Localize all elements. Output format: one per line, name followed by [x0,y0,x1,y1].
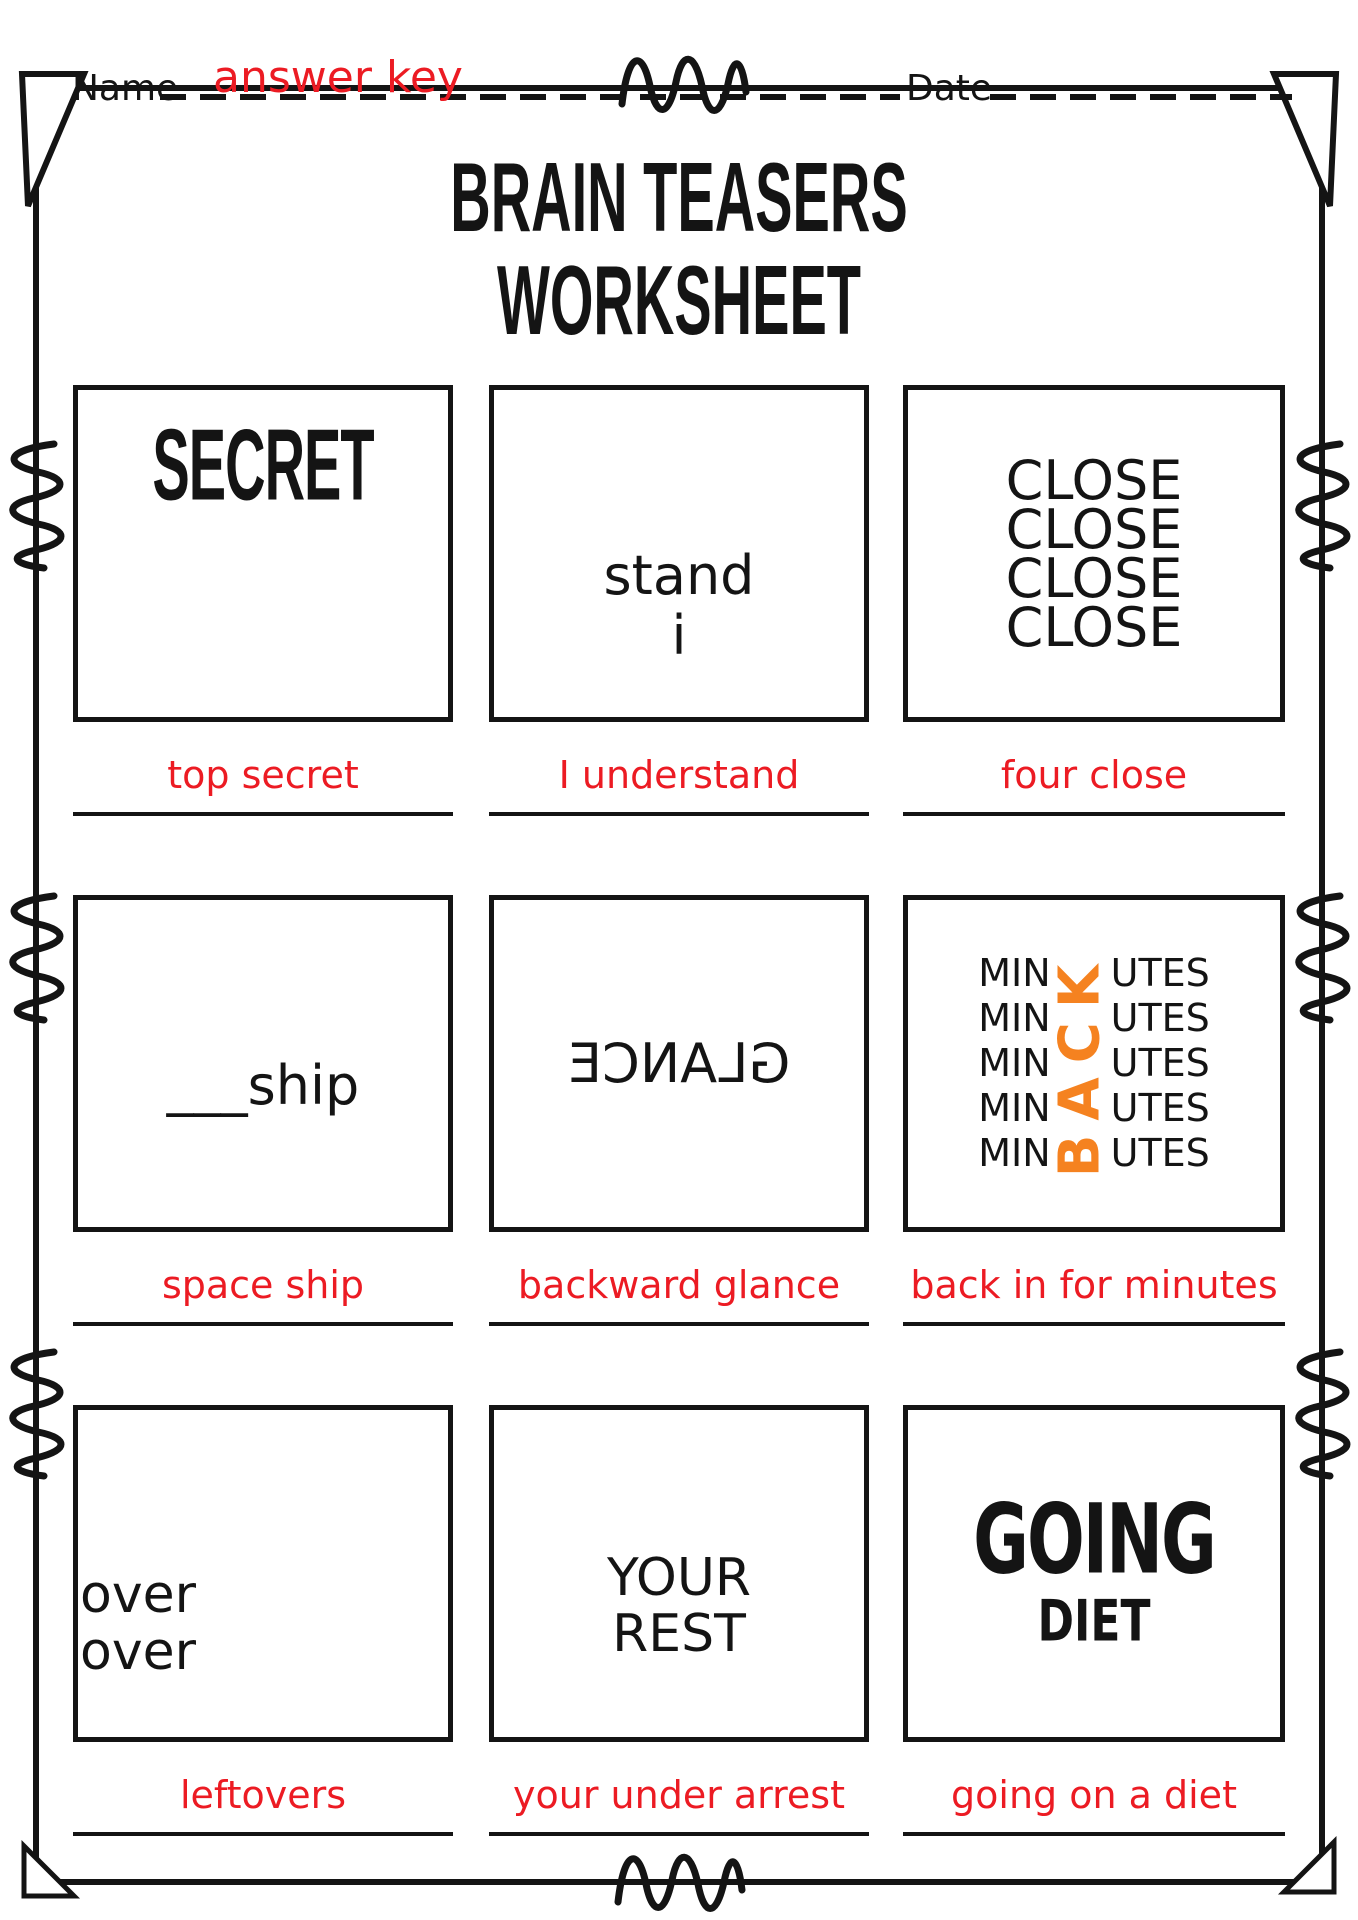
answer-text-8: your under arrest [489,1772,869,1818]
answer-text-7: leftovers [73,1772,453,1818]
answer-text-4: space ship [73,1262,453,1308]
puzzle-text-stand: stand [604,546,755,606]
puzzle-text-diet: DIET [1038,1588,1151,1654]
puzzle-text-back-vertical: BACK [1048,950,1113,1177]
puzzle-box-ship: ___ship [73,895,453,1232]
puzzle-box-over-over: over over [73,1405,453,1742]
answer-text-9: going on a diet [903,1772,1285,1818]
squiggle-decoration-left-2 [0,892,82,1024]
squiggle-decoration-right-2 [1276,892,1358,1024]
answer-underline-4 [73,1322,453,1326]
puzzle-cell-8: YOUR REST your under arrest [489,1405,869,1836]
page-title-line1: BRAIN TEASERS [0,140,1358,254]
puzzle-text-close-4: CLOSE [1006,603,1183,652]
puzzle-cell-5: GLANCE backward glance [489,895,869,1326]
puzzle-text-secret: SECRET [152,406,373,523]
answer-text-3: four close [903,752,1285,798]
min-text: MIN [978,1041,1050,1086]
puzzle-cell-9: GOING DIET going on a diet [903,1405,1285,1836]
puzzle-text-i: i [604,606,755,666]
min-text: MIN [978,1086,1050,1131]
answer-underline-1 [73,812,453,816]
puzzle-box-going-diet: GOING DIET [903,1405,1285,1742]
name-answer-value: answer key [208,52,468,103]
min-text: MIN [978,951,1050,996]
utes-text: UTES [1111,1041,1210,1086]
puzzle-text-over-1: over [80,1567,196,1624]
puzzle-cell-6: MINUTES MINUTES MINUTES MINUTES MINUTES … [903,895,1285,1326]
utes-text: UTES [1111,996,1210,1041]
answer-text-1: top secret [73,752,453,798]
answer-underline-9 [903,1832,1285,1836]
puzzle-box-stand-i: stand i [489,385,869,722]
puzzle-cell-1: SECRET top secret [73,385,453,816]
puzzle-box-your-rest: YOUR REST [489,1405,869,1742]
puzzle-cell-4: ___ship space ship [73,895,453,1326]
puzzle-box-close: CLOSE CLOSE CLOSE CLOSE [903,385,1285,722]
squiggle-decoration-top [618,38,750,138]
puzzle-text-glance-mirrored: GLANCE [568,1032,790,1095]
page-title-line2: WORKSHEET [0,243,1358,357]
answer-underline-8 [489,1832,869,1836]
answer-text-2: I understand [489,752,869,798]
name-label: Name [72,68,178,109]
answer-text-5: backward glance [489,1262,869,1308]
puzzle-cell-7: over over leftovers [73,1405,453,1836]
answer-underline-6 [903,1322,1285,1326]
squiggle-decoration-left-1 [0,440,82,572]
puzzle-box-minutes: MINUTES MINUTES MINUTES MINUTES MINUTES … [903,895,1285,1232]
puzzle-text-your: YOUR [607,1550,751,1606]
date-label: Date [906,68,992,109]
puzzle-text-over-2: over [80,1624,196,1681]
utes-text: UTES [1111,951,1210,996]
squiggle-decoration-right-1 [1276,440,1358,572]
puzzle-text-ship: ___ship [167,1054,360,1117]
corner-triangle-bottom-right [1272,1832,1344,1902]
puzzle-text-going: GOING [973,1484,1215,1596]
utes-text: UTES [1111,1086,1210,1131]
squiggle-decoration-left-3 [0,1348,82,1480]
min-text: MIN [978,996,1050,1041]
worksheet-page: Name answer key Date BRAIN TEASERS WORKS… [0,0,1358,1920]
answer-underline-5 [489,1322,869,1326]
answer-text-6: back in for minutes [903,1262,1285,1308]
puzzle-box-glance: GLANCE [489,895,869,1232]
puzzle-cell-3: CLOSE CLOSE CLOSE CLOSE four close [903,385,1285,816]
answer-underline-2 [489,812,869,816]
squiggle-decoration-right-3 [1276,1348,1358,1480]
answer-underline-7 [73,1832,453,1836]
squiggle-decoration-bottom [614,1836,746,1920]
puzzle-text-rest: REST [607,1606,751,1662]
puzzle-cell-2: stand i I understand [489,385,869,816]
corner-triangle-bottom-left [16,1838,88,1908]
min-text: MIN [978,1131,1050,1176]
answer-underline-3 [903,812,1285,816]
utes-text: UTES [1111,1131,1210,1176]
date-fill-line[interactable] [990,94,1292,100]
puzzle-box-secret: SECRET [73,385,453,722]
